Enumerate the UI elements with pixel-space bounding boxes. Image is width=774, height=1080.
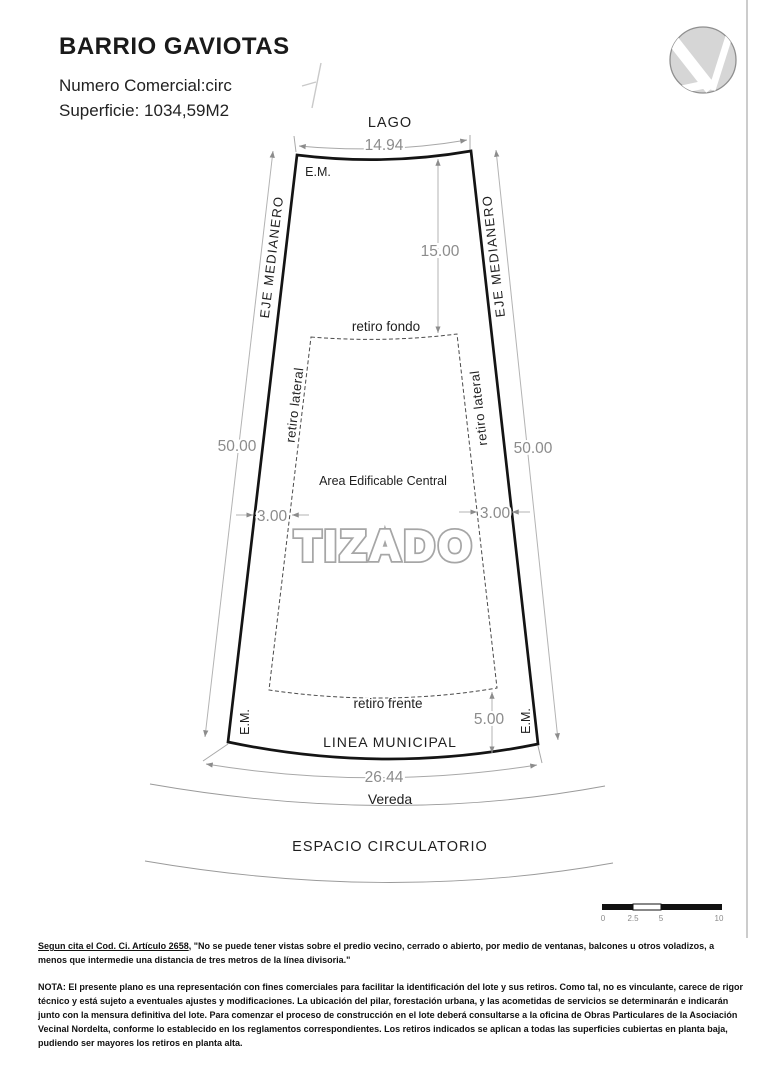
retiro-lateral-right-dim: 3.00 [480, 505, 511, 522]
retiro-lateral-left-dim: 3.00 [257, 508, 288, 525]
scale-bar: 0 2.5 5 10 [601, 904, 724, 923]
eje-medianero-left-label: EJE MEDIANERO [257, 195, 286, 319]
code-citation-lead: Segun cita el Cod. Ci. Artículo 2658 [38, 941, 189, 951]
espacio-circulatorio-arc [145, 861, 613, 883]
espacio-circulatorio-label: ESPACIO CIRCULATORIO [292, 839, 488, 855]
svg-text:TIZADO: TIZADO [295, 522, 475, 569]
tizado-watermark: TIZADO TIZADO [295, 522, 475, 569]
retiro-lateral-right-label: retiro lateral [467, 370, 490, 447]
retiro-frente-dim: 5.00 [474, 711, 505, 728]
em-bottom-right-label: E.M. [519, 708, 533, 734]
retiro-fondo-label: retiro fondo [352, 319, 420, 334]
lot-plan-drawing: LAGO 14.94 50.00 50.00 E.M. EJE MEDIANER… [0, 0, 774, 1080]
dim-top-value: 14.94 [365, 137, 404, 154]
scale-tick-0: 0 [601, 914, 606, 923]
code-citation-note: Segun cita el Cod. Ci. Artículo 2658, "N… [38, 940, 744, 968]
scale-tick-5: 5 [659, 914, 664, 923]
lago-label: LAGO [368, 115, 412, 131]
scale-tick-2-5: 2.5 [627, 914, 639, 923]
extension-line [538, 746, 542, 763]
nota-text: El presente plano es una representación … [38, 982, 743, 1048]
vereda-label: Vereda [368, 791, 413, 807]
dim-bottom-value: 26.44 [365, 769, 404, 786]
scale-tick-10: 10 [715, 914, 724, 923]
extension-line [203, 744, 228, 761]
retiro-fondo-dim: 15.00 [421, 243, 460, 260]
plan-document: { "header": { "title": "BARRIO GAVIOTAS"… [0, 0, 774, 1080]
nota-lead: NOTA: [38, 982, 66, 992]
side-dim-right: 50.00 [514, 440, 553, 457]
retiro-frente-label: retiro frente [353, 696, 422, 711]
area-edificable-label: Area Edificable Central [319, 474, 447, 488]
em-top-label: E.M. [305, 165, 331, 179]
brand-logo-icon [665, 27, 736, 93]
extension-line [294, 136, 296, 152]
stray-marks [302, 63, 321, 108]
em-bottom-left-label: E.M. [238, 709, 252, 735]
linea-municipal-label: LINEA MUNICIPAL [323, 734, 457, 750]
side-dim-left: 50.00 [218, 438, 257, 455]
retiro-lateral-left-label: retiro lateral [283, 367, 307, 444]
nota-note: NOTA: El presente plano es una represent… [38, 981, 744, 1051]
